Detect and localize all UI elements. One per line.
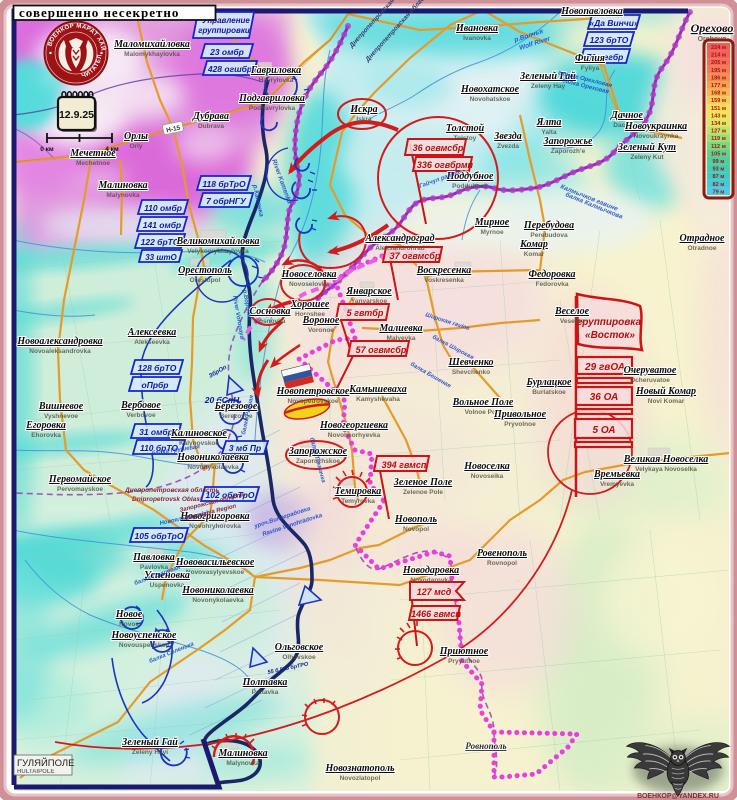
svg-text:Маломихайловка: Маломихайловка xyxy=(113,39,190,50)
svg-text:Zelenoe Pole: Zelenoe Pole xyxy=(403,489,443,496)
svg-text:Velykomykhaylovka: Velykomykhaylovka xyxy=(187,248,249,255)
svg-text:177 м: 177 м xyxy=(711,83,726,89)
svg-text:Егоровка: Егоровка xyxy=(25,420,66,431)
svg-text:Ivanovka: Ivanovka xyxy=(463,35,491,42)
svg-text:Novoseika: Novoseika xyxy=(471,473,504,480)
svg-text:Новоалександровка: Новоалександровка xyxy=(16,336,102,347)
svg-text:4 км: 4 км xyxy=(105,146,119,153)
svg-text:428 огшбр: 428 огшбр xyxy=(207,64,252,74)
svg-text:Yalta: Yalta xyxy=(541,129,557,136)
svg-text:Федоровка: Федоровка xyxy=(529,269,576,280)
svg-text:оПрбр: оПрбр xyxy=(142,380,169,390)
svg-text:Дачное: Дачное xyxy=(610,110,644,121)
svg-text:Olhovskoe: Olhovskoe xyxy=(282,654,316,661)
svg-text:Перебудова: Перебудова xyxy=(523,220,574,231)
svg-text:Вербовое: Вербовое xyxy=(120,400,161,411)
svg-text:Новоукраинка: Новоукраинка xyxy=(624,121,687,132)
svg-text:0 км: 0 км xyxy=(40,146,54,153)
svg-text:Fedorovka: Fedorovka xyxy=(536,281,569,288)
svg-text:37 огвмсбр: 37 огвмсбр xyxy=(390,251,441,261)
svg-text:Novoukraynka: Novoukraynka xyxy=(634,133,679,140)
svg-text:Новопавловка: Новопавловка xyxy=(560,6,623,17)
svg-text:Великая Новоселка: Великая Новоселка xyxy=(623,454,709,465)
svg-text:Новониколаевка: Новониколаевка xyxy=(181,585,254,596)
svg-text:Tolstoy: Tolstoy xyxy=(454,135,477,142)
svg-text:82 м: 82 м xyxy=(713,182,725,188)
svg-text:33 штО: 33 штО xyxy=(145,253,177,262)
svg-text:Павловка: Павловка xyxy=(132,552,175,563)
svg-text:Yanvarskoe: Yanvarskoe xyxy=(351,298,388,305)
svg-text:Dubrava: Dubrava xyxy=(198,123,224,130)
svg-text:Novozlatopol: Novozlatopol xyxy=(340,775,381,782)
svg-text:Rovnopol: Rovnopol xyxy=(487,560,517,567)
svg-text:Ивановка: Ивановка xyxy=(455,23,498,34)
svg-text:Novonykolaevka: Novonykolaevka xyxy=(192,597,244,604)
svg-text:195 м: 195 м xyxy=(711,68,726,74)
svg-text:112 м: 112 м xyxy=(711,144,726,150)
svg-text:5 гвтбр: 5 гвтбр xyxy=(347,308,384,318)
svg-text:Novovasylyevskoe: Novovasylyevskoe xyxy=(186,569,245,576)
svg-text:Novohatskoe: Novohatskoe xyxy=(470,96,511,103)
svg-text:336 огвбрмп: 336 огвбрмп xyxy=(417,160,474,170)
svg-text:Poltavka: Poltavka xyxy=(252,689,279,696)
svg-text:Калиновское: Калиновское xyxy=(170,428,227,439)
svg-text:122 брТО: 122 брТО xyxy=(141,237,180,247)
svg-text:Pryvolnoe: Pryvolnoe xyxy=(504,421,536,428)
svg-text:Гавриловка: Гавриловка xyxy=(250,65,301,76)
svg-text:Komar: Komar xyxy=(524,251,545,258)
svg-text:Малиновка: Малиновка xyxy=(97,180,147,191)
svg-text:23 омбр: 23 омбр xyxy=(209,47,244,57)
svg-text:Новополь: Новополь xyxy=(394,514,438,525)
svg-text:Voskresenka: Voskresenka xyxy=(424,277,464,284)
svg-text:Новохатское: Новохатское xyxy=(460,84,520,95)
svg-text:Voronoe: Voronoe xyxy=(308,327,334,334)
svg-text:Pervomayskoe: Pervomayskoe xyxy=(57,486,103,493)
svg-text:Malyevka: Malyevka xyxy=(387,335,416,342)
svg-text:Январское: Январское xyxy=(345,286,392,297)
svg-text:Нововасильевское: Нововасильевское xyxy=(175,557,255,568)
svg-text:Новоселовка: Новоселовка xyxy=(280,269,336,280)
svg-text:Вишневое: Вишневое xyxy=(38,401,84,412)
svg-text:134 м: 134 м xyxy=(711,121,726,127)
svg-text:Novoaleksandrovka: Novoaleksandrovka xyxy=(29,348,91,355)
svg-text:36 ОА: 36 ОА xyxy=(590,392,619,403)
svg-text:Verbovoe: Verbovoe xyxy=(126,412,156,419)
svg-text:Zvezda: Zvezda xyxy=(497,143,519,150)
svg-text:Pryyutnoe: Pryyutnoe xyxy=(448,658,480,665)
svg-text:Zeleny Hayi: Zeleny Hayi xyxy=(132,749,168,756)
svg-text:31 омбр: 31 омбр xyxy=(139,427,173,437)
svg-text:Poddubnoe: Poddubnoe xyxy=(452,183,488,190)
svg-text:5 ОА: 5 ОА xyxy=(593,425,616,436)
svg-text:Ольговское: Ольговское xyxy=(275,642,324,653)
svg-text:Новое: Новое xyxy=(115,609,143,620)
svg-text:29 гвОА: 29 гвОА xyxy=(584,362,625,373)
svg-text:Novoe: Novoe xyxy=(119,621,139,628)
svg-text:Веселое: Веселое xyxy=(554,306,590,317)
svg-text:Первомайское: Первомайское xyxy=(48,474,112,485)
svg-text:Новоуспенское: Новоуспенское xyxy=(111,630,177,641)
svg-text:Отрадное: Отрадное xyxy=(680,233,726,244)
svg-text:141 омбр: 141 омбр xyxy=(143,220,181,230)
svg-text:Мирное: Мирное xyxy=(474,217,510,228)
svg-text:394 гвмсп: 394 гвмсп xyxy=(382,460,427,470)
svg-text:Dnipropetrovsk Oblast: Dnipropetrovsk Oblast xyxy=(132,496,203,503)
svg-text:Зеленый Гай: Зеленый Гай xyxy=(121,737,178,748)
svg-text:Новознатополь: Новознатополь xyxy=(324,763,395,774)
svg-text:Привольное: Привольное xyxy=(493,409,547,420)
svg-text:Zaporozh'e: Zaporozh'e xyxy=(551,148,586,155)
svg-text:совершенно несекретно: совершенно несекретно xyxy=(19,5,179,20)
svg-text:Новониколаевка: Новониколаевка xyxy=(176,452,249,463)
svg-text:12.9.25: 12.9.25 xyxy=(59,109,94,121)
svg-text:Новодаровка: Новодаровка xyxy=(402,565,459,576)
svg-text:Novi Komar: Novi Komar xyxy=(648,398,685,405)
svg-text:«Восток»: «Восток» xyxy=(585,330,635,341)
svg-text:57 огвмсбр: 57 огвмсбр xyxy=(356,345,407,355)
svg-text:205 м: 205 м xyxy=(711,60,726,66)
svg-text:79 м: 79 м xyxy=(713,189,725,195)
svg-text:Зеленый Кут: Зеленый Кут xyxy=(617,142,676,153)
svg-text:Ровенополь: Ровенополь xyxy=(477,548,528,559)
svg-text:Ocheruvatoe: Ocheruvatoe xyxy=(630,377,670,384)
svg-text:Havrylovka: Havrylovka xyxy=(259,77,294,84)
svg-text:Novopol: Novopol xyxy=(403,526,429,533)
svg-text:1466 гвмсп: 1466 гвмсп xyxy=(411,609,461,619)
svg-text:Podhavrylovka: Podhavrylovka xyxy=(249,105,296,112)
svg-text:127 м: 127 м xyxy=(711,129,726,135)
svg-text:Alekseevka: Alekseevka xyxy=(134,339,170,346)
svg-text:Orly: Orly xyxy=(129,143,142,150)
svg-text:Temyrovka: Temyrovka xyxy=(341,498,375,505)
svg-text:Новопетровское: Новопетровское xyxy=(276,386,350,397)
svg-text:Зеленое Поле: Зеленое Поле xyxy=(393,477,453,488)
svg-text:Комар: Комар xyxy=(519,239,548,250)
svg-text:Новоселка: Новоселка xyxy=(463,461,510,472)
svg-text:группировки: группировки xyxy=(198,26,250,35)
svg-text:151 м: 151 м xyxy=(711,106,726,112)
svg-text:Полтавка: Полтавка xyxy=(242,677,288,688)
svg-text:Orestopol: Orestopol xyxy=(190,277,221,284)
svg-text:Ялта: Ялта xyxy=(536,117,562,128)
svg-text:Запорожье: Запорожье xyxy=(543,136,593,147)
svg-text:Очеруватое: Очеруватое xyxy=(624,365,677,376)
svg-text:Дубрава: Дубрава xyxy=(192,111,229,122)
svg-text:Myrnoe: Myrnoe xyxy=(480,229,504,236)
svg-text:Burlatskoe: Burlatskoe xyxy=(532,389,566,396)
svg-text:Iskra: Iskra xyxy=(356,116,372,123)
svg-text:Fyliya: Fyliya xyxy=(581,65,600,72)
svg-text:Воскресенка: Воскресенка xyxy=(416,265,472,276)
svg-text:Novodarovka: Novodarovka xyxy=(410,577,452,584)
svg-text:168 м: 168 м xyxy=(711,91,726,97)
svg-text:Хорошее: Хорошее xyxy=(290,299,330,310)
svg-text:Malynovka: Malynovka xyxy=(106,192,140,199)
svg-text:Novonykolaevka: Novonykolaevka xyxy=(187,464,239,471)
svg-text:Sosnovka: Sosnovka xyxy=(255,318,286,325)
svg-text:Ehorovka: Ehorovka xyxy=(31,432,61,439)
svg-text:123 брТО: 123 брТО xyxy=(590,35,629,45)
svg-text:Zeleny Kut: Zeleny Kut xyxy=(630,154,664,161)
svg-text:119 м: 119 м xyxy=(711,136,726,142)
svg-text:Темировка: Темировка xyxy=(335,486,382,497)
svg-text:93 м: 93 м xyxy=(713,167,725,173)
svg-text:Толстой: Толстой xyxy=(446,123,485,134)
svg-text:Mechetnoe: Mechetnoe xyxy=(76,160,110,167)
svg-text:99 м: 99 м xyxy=(713,159,725,165)
svg-text:HULTAIPOLE: HULTAIPOLE xyxy=(17,769,54,775)
svg-text:214 м: 214 м xyxy=(711,53,726,59)
svg-text:Zeleny Hay: Zeleny Hay xyxy=(531,83,566,90)
svg-text:Ровнополь: Ровнополь xyxy=(465,741,506,751)
svg-text:Novouspenskoe: Novouspenskoe xyxy=(119,642,170,649)
svg-text:159 м: 159 м xyxy=(711,98,726,104)
svg-text:Орехово: Орехово xyxy=(691,21,734,35)
svg-text:ВОЕНКОР@YANDEX.RU: ВОЕНКОР@YANDEX.RU xyxy=(637,793,719,800)
svg-text:Novoselovka: Novoselovka xyxy=(289,281,329,288)
svg-text:Времьевка: Времьевка xyxy=(593,469,640,480)
svg-text:87 м: 87 м xyxy=(713,174,725,180)
svg-text:Вольное Поле: Вольное Поле xyxy=(452,397,514,408)
svg-text:«Да Винчи»: «Да Винчи» xyxy=(589,18,639,28)
svg-text:Искра: Искра xyxy=(349,104,377,115)
svg-text:36 огвмсбр: 36 огвмсбр xyxy=(413,143,464,153)
svg-text:группировка: группировка xyxy=(577,317,642,328)
svg-text:Kamyshevaha: Kamyshevaha xyxy=(356,396,400,403)
svg-text:105 м: 105 м xyxy=(711,151,726,157)
svg-text:7 обрНГУ: 7 обрНГУ xyxy=(206,196,247,206)
svg-text:110 омбр: 110 омбр xyxy=(144,203,182,213)
svg-text:Великомихайловка: Великомихайловка xyxy=(175,236,259,247)
svg-text:Малиновка: Малиновка xyxy=(217,748,267,759)
svg-text:186 м: 186 м xyxy=(711,75,726,81)
svg-text:Подгавриловка: Подгавриловка xyxy=(238,93,305,104)
svg-text:105 обрТрО: 105 обрТрО xyxy=(135,531,184,541)
svg-text:Сосновка: Сосновка xyxy=(249,306,290,317)
svg-text:Novoheorhyevka: Novoheorhyevka xyxy=(328,432,381,439)
svg-text:127 мсд: 127 мсд xyxy=(417,587,452,597)
svg-text:ГУЛЯЙПОЛЕ: ГУЛЯЙПОЛЕ xyxy=(17,757,74,769)
svg-text:Филия: Филия xyxy=(575,53,605,64)
svg-text:Shevchenko: Shevchenko xyxy=(452,369,490,376)
svg-text:Новый Комар: Новый Комар xyxy=(635,386,696,397)
svg-text:Александроград: Александроград xyxy=(364,233,434,244)
svg-text:Novohryhorovka: Novohryhorovka xyxy=(189,523,241,530)
svg-text:Veseloe: Veseloe xyxy=(560,318,585,325)
svg-text:224 м: 224 м xyxy=(711,45,726,51)
svg-text:Приютное: Приютное xyxy=(439,646,489,657)
svg-text:128 брТО: 128 брТО xyxy=(138,363,177,373)
svg-text:Novopetrovskoe: Novopetrovskoe xyxy=(288,398,339,405)
svg-text:Алексеевка: Алексеевка xyxy=(127,327,176,338)
svg-text:Velykaya Novoselka: Velykaya Novoselka xyxy=(635,466,697,473)
svg-text:Камышеваха: Камышеваха xyxy=(348,384,407,395)
svg-text:Vyshnevoe: Vyshnevoe xyxy=(44,413,78,420)
svg-text:Malomykhaylovka: Malomykhaylovka xyxy=(124,51,180,58)
svg-text:Звезда: Звезда xyxy=(493,131,521,142)
svg-text:Malynovka: Malynovka xyxy=(226,760,260,767)
svg-text:Vremyevka: Vremyevka xyxy=(600,481,634,488)
svg-text:Otradnoe: Otradnoe xyxy=(688,245,717,252)
svg-text:Новогеоргиевка: Новогеоргиевка xyxy=(319,420,388,431)
svg-text:Днепропетровская область: Днепропетровская область xyxy=(124,486,219,494)
svg-text:118 брТрО: 118 брТрО xyxy=(202,179,246,189)
svg-text:Aleksandrohrad: Aleksandrohrad xyxy=(375,245,425,252)
svg-text:Малиевка: Малиевка xyxy=(378,323,422,334)
svg-text:Орестополь: Орестополь xyxy=(178,265,232,276)
svg-text:Вороное: Вороное xyxy=(302,315,340,326)
svg-text:Орлы: Орлы xyxy=(124,131,148,142)
svg-text:143 м: 143 м xyxy=(711,113,726,119)
svg-text:Бурлацкое: Бурлацкое xyxy=(526,377,573,388)
svg-text:Uspenovka: Uspenovka xyxy=(150,582,185,589)
svg-text:Perebudova: Perebudova xyxy=(530,232,568,239)
